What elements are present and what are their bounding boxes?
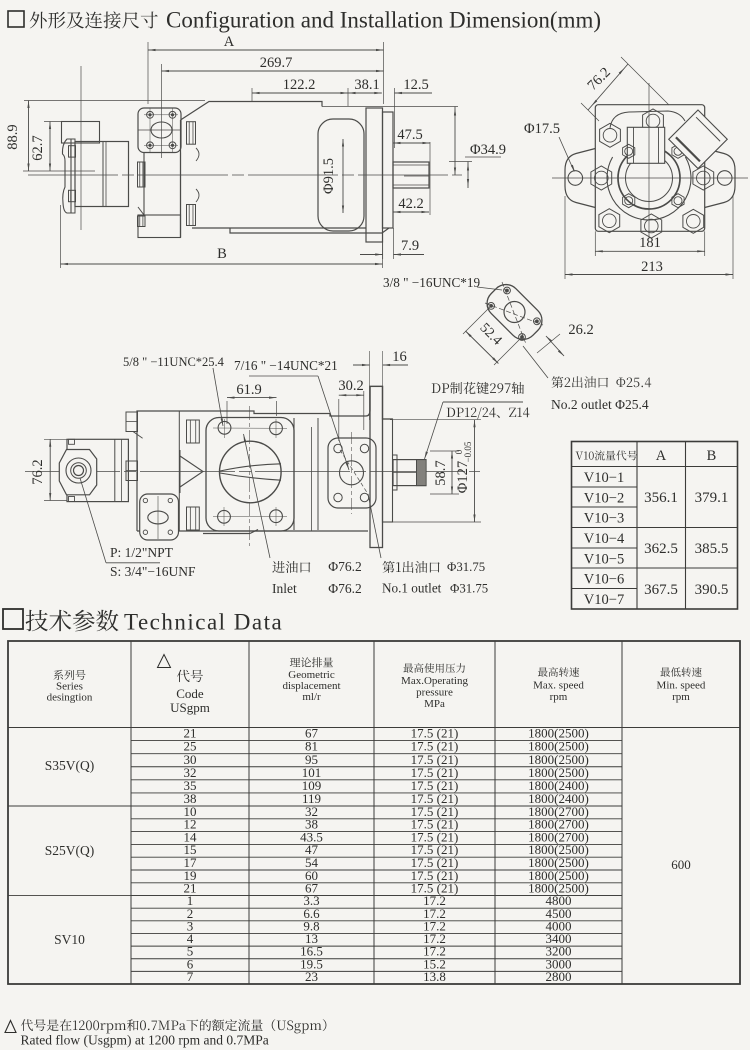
svg-text:13.8: 13.8 (423, 969, 446, 984)
svg-text:V10−1: V10−1 (584, 470, 624, 486)
svg-text:47.5: 47.5 (397, 127, 422, 143)
svg-text:88.9: 88.9 (5, 124, 21, 149)
svg-text:Φ127: Φ127 (455, 461, 471, 493)
svg-text:Min. speed: Min. speed (657, 680, 706, 692)
svg-text:B: B (217, 246, 227, 262)
svg-text:181: 181 (639, 235, 661, 251)
svg-text:S25V(Q): S25V(Q) (45, 843, 95, 858)
svg-text:Max. speed: Max. speed (533, 680, 584, 692)
svg-text:B: B (707, 448, 717, 464)
svg-text:ml/r: ml/r (302, 691, 321, 703)
svg-text:42.2: 42.2 (398, 196, 423, 212)
svg-text:3/8 " −16UNC*19: 3/8 " −16UNC*19 (383, 275, 480, 290)
svg-text:2800: 2800 (546, 969, 572, 984)
svg-text:rpm: rpm (550, 691, 568, 703)
svg-text:12.5: 12.5 (403, 77, 428, 93)
svg-text:USgpm: USgpm (170, 700, 210, 715)
svg-text:pressure: pressure (416, 687, 453, 699)
svg-text:V10−7: V10−7 (584, 592, 624, 608)
svg-text:V10−4: V10−4 (584, 531, 625, 547)
svg-text:61.9: 61.9 (236, 382, 261, 398)
svg-text:Φ76.2: Φ76.2 (328, 559, 362, 574)
svg-text:Φ31.75: Φ31.75 (447, 560, 485, 574)
svg-text:SV10: SV10 (54, 932, 85, 947)
svg-text:62.7: 62.7 (30, 135, 46, 160)
svg-text:Configuration and Installation: Configuration and Installation Dimension… (166, 8, 601, 33)
svg-text:367.5: 367.5 (644, 582, 678, 598)
svg-text:S: 3/4"−16UNF: S: 3/4"−16UNF (110, 564, 196, 579)
svg-text:362.5: 362.5 (644, 541, 678, 557)
svg-text:V10−3: V10−3 (584, 511, 624, 527)
svg-text:Φ91.5: Φ91.5 (321, 158, 337, 194)
svg-text:122.2: 122.2 (283, 77, 316, 93)
svg-text:Φ76.2: Φ76.2 (328, 581, 362, 596)
svg-text:30.2: 30.2 (338, 378, 363, 394)
svg-text:600: 600 (671, 857, 691, 872)
svg-text:MPa: MPa (424, 698, 445, 710)
svg-text:A: A (224, 34, 235, 50)
svg-text:Φ31.75: Φ31.75 (450, 582, 488, 596)
svg-text:16: 16 (392, 349, 407, 365)
svg-text:7: 7 (187, 969, 194, 984)
svg-text:213: 213 (641, 259, 663, 275)
svg-text:Φ17.5: Φ17.5 (524, 121, 560, 137)
svg-text:S35V(Q): S35V(Q) (45, 758, 95, 773)
svg-text:38.1: 38.1 (354, 77, 379, 93)
svg-text:Max.Operating: Max.Operating (401, 675, 468, 687)
svg-text:No.2 outlet Φ25.4: No.2 outlet Φ25.4 (551, 397, 649, 412)
svg-text:390.5: 390.5 (695, 582, 729, 598)
svg-text:385.5: 385.5 (695, 541, 729, 557)
svg-text:269.7: 269.7 (260, 55, 293, 71)
svg-text:−0.05: −0.05 (463, 441, 473, 462)
svg-text:7/16 " −14UNC*21: 7/16 " −14UNC*21 (234, 358, 338, 373)
svg-text:rpm: rpm (672, 691, 690, 703)
svg-text:V10−6: V10−6 (584, 572, 624, 588)
svg-text:V10−5: V10−5 (584, 552, 624, 568)
svg-text:desingtion: desingtion (47, 692, 93, 704)
svg-text:Rated flow (Usgpm) at 1200 rpm: Rated flow (Usgpm) at 1200 rpm and 0.7MP… (21, 1033, 269, 1048)
svg-text:A: A (656, 448, 667, 464)
svg-text:Inlet: Inlet (272, 581, 297, 596)
svg-text:356.1: 356.1 (644, 490, 678, 506)
svg-text:7.9: 7.9 (401, 238, 419, 254)
svg-text:P: 1/2"NPT: P: 1/2"NPT (110, 545, 174, 560)
svg-text:No.1 outlet: No.1 outlet (382, 581, 442, 596)
svg-text:Technical Data: Technical Data (124, 610, 283, 635)
svg-text:V10−2: V10−2 (584, 491, 624, 507)
svg-text:23: 23 (305, 969, 318, 984)
svg-text:Code: Code (176, 686, 204, 701)
svg-text:76.2: 76.2 (30, 459, 46, 484)
svg-text:Φ34.9: Φ34.9 (470, 142, 506, 158)
svg-text:5/8 " −11UNC*25.4: 5/8 " −11UNC*25.4 (123, 355, 225, 369)
svg-text:58.7: 58.7 (433, 460, 449, 485)
svg-text:26.2: 26.2 (568, 322, 593, 338)
svg-text:379.1: 379.1 (695, 490, 729, 506)
